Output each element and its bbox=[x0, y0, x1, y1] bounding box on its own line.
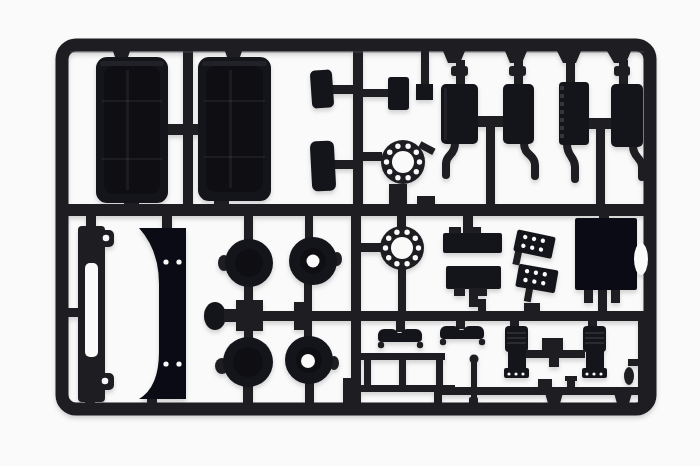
ladder-frame bbox=[356, 353, 455, 392]
mudguard-right bbox=[198, 51, 271, 210]
sprue-photo: Photograph of a black injection-molded p… bbox=[0, 0, 700, 466]
photo-of-model-sprue: Photograph of a black injection-molded p… bbox=[0, 0, 700, 466]
